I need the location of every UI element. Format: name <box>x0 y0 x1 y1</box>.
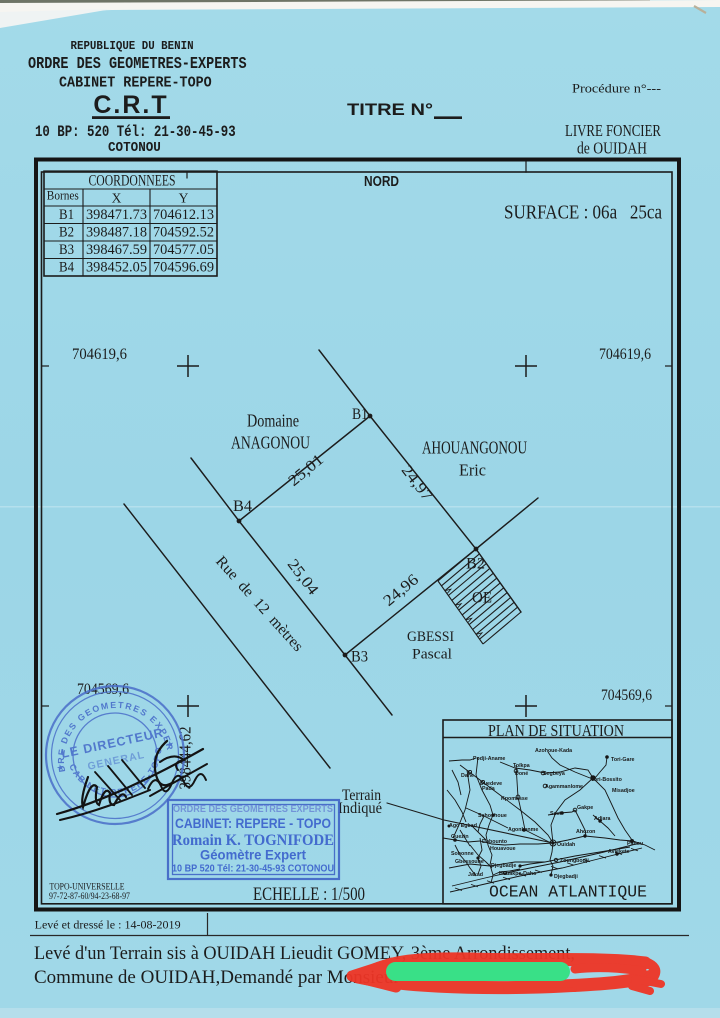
svg-text:Houakpe-Daho: Houakpe-Daho <box>499 871 537 877</box>
svg-text:Savi: Savi <box>550 811 561 817</box>
svg-text:Jakad: Jakad <box>468 872 483 878</box>
svg-text:704577.05: 704577.05 <box>153 242 214 258</box>
svg-text:Agonkanme: Agonkanme <box>508 827 538 833</box>
svg-text:Houavoue: Houavoue <box>490 846 516 852</box>
svg-text:PLAN DE SITUATION: PLAN DE SITUATION <box>488 721 624 740</box>
svg-text:398452.05: 398452.05 <box>86 260 147 276</box>
svg-text:OE: OE <box>472 590 492 607</box>
svg-text:398467.59: 398467.59 <box>86 242 147 258</box>
svg-text:Géomètre Expert: Géomètre Expert <box>200 848 306 863</box>
svg-text:Sohonne: Sohonne <box>451 851 474 857</box>
svg-text:AHOUANGONOU: AHOUANGONOU <box>422 438 527 458</box>
svg-text:Gakpe: Gakpe <box>577 805 593 811</box>
svg-text:COORDONNEES: COORDONNEES <box>89 173 176 190</box>
svg-text:Zoungbodji: Zoungbodji <box>560 858 589 864</box>
svg-text:Tori-Gare: Tori-Gare <box>611 757 635 763</box>
svg-text:Tori-Bossito: Tori-Bossito <box>591 777 623 783</box>
svg-text:Sehouhoue: Sehouhoue <box>478 813 507 819</box>
svg-text:NORD: NORD <box>364 174 399 190</box>
svg-text:LIVRE FONCIER: LIVRE FONCIER <box>565 121 661 140</box>
svg-text:CABINET: REPERE - TOPO: CABINET: REPERE - TOPO <box>175 815 331 831</box>
svg-text:ORDRE DES GEOMETRES-EXPERTS: ORDRE DES GEOMETRES-EXPERTS <box>28 54 247 74</box>
svg-text:398471.73: 398471.73 <box>86 207 147 223</box>
svg-text:10 BP 520 Tél: 21-30-45-93 C: 10 BP 520 Tél: 21-30-45-93 COTONOU <box>172 863 334 875</box>
svg-text:REPUBLIQUE DU BENIN: REPUBLIQUE DU BENIN <box>71 39 194 53</box>
svg-text:704596.69: 704596.69 <box>153 260 214 276</box>
svg-text:Djegbadje: Djegbadje <box>491 863 516 869</box>
svg-text:Kpomasse: Kpomasse <box>501 796 528 802</box>
svg-text:B3: B3 <box>59 242 74 258</box>
svg-text:704569,6: 704569,6 <box>601 687 652 704</box>
svg-text:704592.52: 704592.52 <box>153 225 214 241</box>
svg-text:Domaine: Domaine <box>247 411 299 431</box>
svg-text:B3: B3 <box>351 649 368 666</box>
svg-text:Procédure n°---: Procédure n°--- <box>572 81 661 96</box>
svg-text:B4: B4 <box>59 260 75 276</box>
svg-text:de OUIDAH: de OUIDAH <box>577 139 647 158</box>
svg-text:Dahe: Dahe <box>461 773 474 779</box>
svg-text:Bornes: Bornes <box>47 189 79 203</box>
svg-text:Commune de OUIDAH,Demandé par: Commune de OUIDAH,Demandé par Monsieur <box>34 967 400 988</box>
svg-text:Segbeya: Segbeya <box>543 771 565 777</box>
svg-text:B2: B2 <box>466 556 485 573</box>
svg-text:Agammanlome: Agammanlome <box>545 784 583 790</box>
svg-text:Ago Egbad: Ago Egbad <box>449 823 477 829</box>
svg-text:398487.18: 398487.18 <box>86 225 147 241</box>
svg-text:Ahozon: Ahozon <box>576 829 595 835</box>
svg-text:Dobounto: Dobounto <box>482 839 508 845</box>
svg-text:GBESSI: GBESSI <box>407 629 454 645</box>
svg-text:ORDRE DES GEOMETRES EXPERTS: ORDRE DES GEOMETRES EXPERTS <box>173 803 333 815</box>
svg-text:Pada: Pada <box>482 786 495 792</box>
svg-text:Toïkpa: Toïkpa <box>513 763 530 769</box>
svg-text:B4: B4 <box>233 498 252 515</box>
svg-text:CABINET REPERE-TOPO: CABINET REPERE-TOPO <box>59 75 212 92</box>
svg-text:Guezin: Guezin <box>451 834 469 840</box>
svg-text:Pascal: Pascal <box>412 647 452 663</box>
svg-text:COTONOU: COTONOU <box>108 140 161 155</box>
svg-text:Indiqué: Indiqué <box>338 800 382 817</box>
svg-text:X: X <box>112 191 122 206</box>
svg-text:Adjara: Adjara <box>594 816 611 822</box>
svg-text:Djegbadji: Djegbadji <box>554 874 578 880</box>
svg-text:Podji-Aname: Podji-Aname <box>473 756 505 762</box>
svg-text:Avlekete: Avlekete <box>608 849 630 855</box>
svg-text:B2: B2 <box>59 225 74 241</box>
svg-text:Levé et dressé le : 14-08-2019: Levé et dressé le : 14-08-2019 <box>35 918 181 932</box>
svg-text:Azohoue-Kada: Azohoue-Kada <box>535 748 572 754</box>
svg-text:Y: Y <box>179 191 189 206</box>
svg-text:704619,6: 704619,6 <box>599 346 651 363</box>
svg-text:B1: B1 <box>59 207 74 223</box>
svg-text:ECHELLE : 1/500: ECHELLE : 1/500 <box>253 884 365 905</box>
svg-text:C.R.T: C.R.T <box>93 91 168 119</box>
svg-text:TITRE N°: TITRE N° <box>347 100 433 119</box>
svg-text:97-72-87-60/94-23-68-97: 97-72-87-60/94-23-68-97 <box>49 891 130 901</box>
svg-text:Pahou: Pahou <box>627 841 643 847</box>
svg-text:Misadjoe: Misadjoe <box>612 788 635 794</box>
svg-text:Gbessoune: Gbessoune <box>455 859 484 865</box>
svg-text:ANAGONOU: ANAGONOU <box>231 433 310 453</box>
svg-text:704619,6: 704619,6 <box>72 346 127 363</box>
svg-text:704612.13: 704612.13 <box>153 207 214 223</box>
svg-text:SURFACE : 06a 25ca: SURFACE : 06a 25ca <box>504 203 662 224</box>
svg-text:Eric: Eric <box>459 461 486 480</box>
svg-text:B1: B1 <box>352 406 368 423</box>
svg-text:OCEAN ATLANTIQUE: OCEAN ATLANTIQUE <box>489 884 647 903</box>
svg-text:Doné: Doné <box>515 771 528 777</box>
svg-text:Romain K. TOGNIFODE: Romain K. TOGNIFODE <box>172 832 334 849</box>
svg-text:704569,6: 704569,6 <box>77 681 129 698</box>
svg-text:Ouidah: Ouidah <box>557 842 575 848</box>
